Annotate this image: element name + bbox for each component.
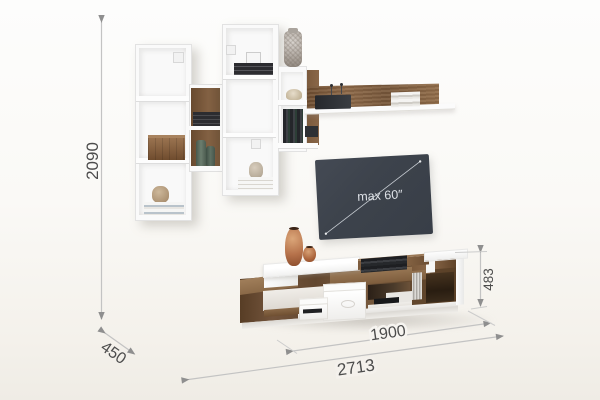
svg-text:483: 483 — [481, 268, 496, 291]
svg-text:2713: 2713 — [336, 355, 376, 379]
svg-text:450: 450 — [97, 339, 129, 368]
svg-text:2090: 2090 — [83, 142, 102, 180]
svg-text:1900: 1900 — [369, 323, 407, 345]
